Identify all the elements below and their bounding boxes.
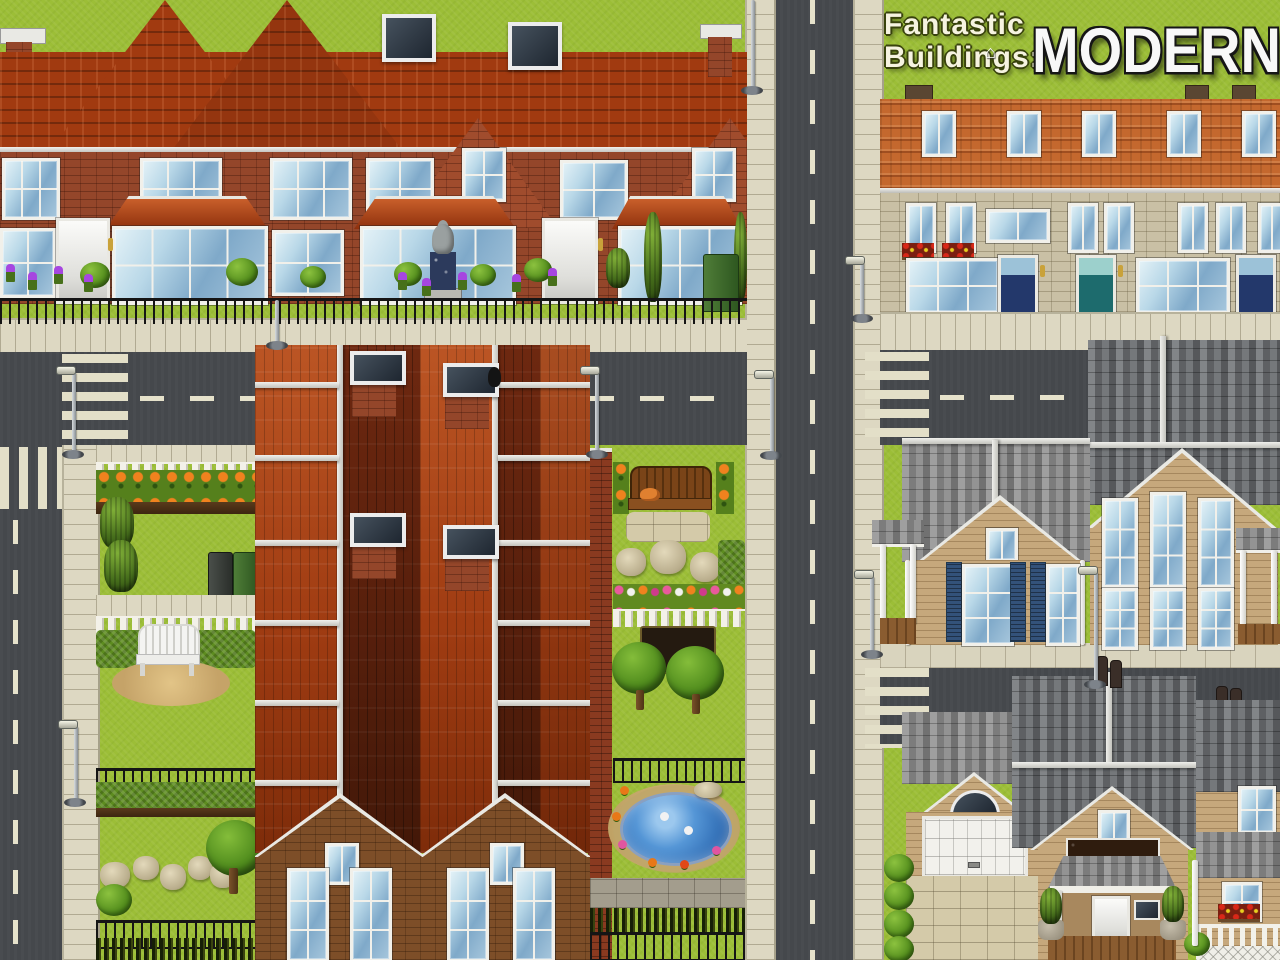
tree-canopy <box>666 646 724 700</box>
flowerbed-soil <box>96 808 256 817</box>
street-lamp-head <box>58 720 78 729</box>
garage-door-handle <box>968 862 980 868</box>
white-bench-leg <box>189 663 194 676</box>
bush <box>300 266 326 288</box>
dark-plants <box>96 938 256 960</box>
black-cat <box>488 367 501 387</box>
tall-window <box>1198 498 1234 588</box>
porch-base <box>1048 936 1176 960</box>
title-main: MODERN <box>1032 14 1280 87</box>
roof-window <box>1007 111 1041 157</box>
street-lamp-head <box>854 570 874 579</box>
roof-ridge-bar <box>498 620 590 626</box>
window-wide <box>986 209 1050 243</box>
stone-terraced-houses <box>880 85 1280 312</box>
road-vertical-left <box>0 445 62 960</box>
roof-ridge-bar <box>255 780 339 786</box>
flower <box>712 846 721 855</box>
window <box>2 158 60 220</box>
roof-window <box>1242 111 1276 157</box>
street-lamp-pole <box>860 262 864 320</box>
street-lamp-base <box>760 451 782 460</box>
plant-pot <box>1160 920 1186 940</box>
porch-deck <box>1238 624 1280 644</box>
window <box>1068 203 1098 253</box>
street-lamp-base <box>62 450 84 459</box>
window-shutter <box>946 562 962 642</box>
street-lamp-head <box>580 366 600 375</box>
purple-flowers <box>28 272 37 290</box>
door-lamp <box>108 238 113 251</box>
bay-window-roof <box>106 196 268 229</box>
window <box>1104 203 1134 253</box>
tree-trunk <box>692 694 700 714</box>
street-lamp-head <box>56 366 76 375</box>
window <box>962 564 1014 646</box>
tree-trunk <box>229 868 238 894</box>
porch-post <box>910 544 916 624</box>
street-lamp-base <box>851 314 873 323</box>
stepping-stone <box>133 856 159 880</box>
purple-flowers <box>548 268 557 286</box>
roof-ridge-bar <box>255 382 339 388</box>
street-lamp-base <box>861 650 883 659</box>
street-lamp-pole <box>275 300 279 346</box>
porch-awning <box>1048 856 1176 888</box>
street-lamp-base <box>64 798 86 807</box>
iron-fence <box>613 758 745 783</box>
street-lamp-head <box>845 256 865 265</box>
roof-ridge-bar <box>255 700 339 706</box>
awning-roof <box>1196 832 1280 881</box>
garage-roof <box>902 712 1028 784</box>
orange-cat <box>640 488 660 501</box>
sand-patch <box>112 660 230 706</box>
bay-window-roof <box>354 196 516 229</box>
tree-canopy <box>612 642 666 694</box>
hedge-row <box>96 782 256 810</box>
statue-plinth <box>430 252 456 290</box>
picket-fence <box>613 609 745 627</box>
tulips-multicolor <box>613 584 745 610</box>
chimney-pipe <box>1110 660 1122 688</box>
flower <box>648 858 657 867</box>
street-lamp-pole <box>870 576 874 656</box>
garden-path <box>96 595 256 617</box>
street-lamp-pole <box>770 376 774 456</box>
flower <box>620 786 629 795</box>
roof-skylight <box>508 22 562 70</box>
tulips-orange <box>716 462 734 514</box>
roof-panel <box>495 345 540 853</box>
tall-window <box>513 868 555 960</box>
window <box>1258 203 1280 253</box>
chimney-skylight <box>443 525 499 559</box>
gable-window <box>986 528 1018 562</box>
bush <box>226 258 258 286</box>
street-lamp-pole <box>751 0 755 90</box>
road-center-line <box>13 520 18 960</box>
chimney <box>708 37 732 77</box>
street-lamp-pole <box>72 372 76 456</box>
water-lily <box>684 826 693 835</box>
stepping-stone <box>160 864 186 890</box>
street-lamp-pole <box>74 726 78 804</box>
tall-window <box>350 868 392 960</box>
bush <box>884 936 914 960</box>
potted-plant <box>1162 886 1184 922</box>
door-lamp <box>598 238 603 251</box>
roof-ridge <box>1160 336 1166 446</box>
rock <box>616 548 646 576</box>
street-lamp-base <box>1084 680 1106 689</box>
flower <box>612 812 621 821</box>
crosswalk <box>865 352 929 443</box>
tulips-orange <box>613 462 629 514</box>
tall-window <box>447 868 489 960</box>
chimney-skylight <box>350 351 406 385</box>
tall-window <box>287 868 329 960</box>
roof-ridge <box>492 345 498 853</box>
rock <box>650 540 686 574</box>
brick-terraced-houses <box>0 0 747 324</box>
driveway <box>906 876 1038 960</box>
roof-ridge-bar <box>498 700 590 706</box>
tall-window <box>1150 588 1186 650</box>
balcony-planter <box>1066 838 1160 858</box>
window <box>1238 786 1276 834</box>
grass-blades <box>590 908 745 934</box>
hedge <box>196 630 256 668</box>
road-center-line <box>810 0 815 960</box>
roof-ridge <box>337 345 343 853</box>
wooden-bench-seat <box>628 498 712 510</box>
window <box>1046 564 1080 646</box>
roof-panel <box>340 345 420 853</box>
pond-rock <box>694 782 722 798</box>
street-lamp-base <box>741 86 763 95</box>
bay-window-roof <box>612 196 742 229</box>
roof-ridge-bar <box>255 540 339 546</box>
flower <box>680 860 689 869</box>
crosswalk <box>0 447 62 509</box>
porch-deck <box>880 618 916 644</box>
front-door-navy <box>1236 255 1276 312</box>
street-lamp-base <box>586 450 608 459</box>
roof-ridge-bar <box>498 455 590 461</box>
roof-ridge <box>992 440 998 504</box>
roof-ridge-bar <box>498 540 590 546</box>
purple-flowers <box>6 264 15 282</box>
purple-flowers <box>54 266 63 284</box>
potted-plant <box>1040 888 1062 924</box>
street-lamp-pole <box>595 372 599 456</box>
tileset-preview-map: Fantastic Buildings: ⌂ MODERN <box>0 0 1280 960</box>
chimney-skylight <box>350 513 406 547</box>
bush <box>884 854 914 882</box>
tall-window <box>1198 588 1234 650</box>
porch-post <box>880 544 886 624</box>
front-door-white <box>56 218 110 304</box>
roof-panel <box>255 345 340 853</box>
window <box>1178 203 1208 253</box>
roof-panel <box>540 345 590 853</box>
purple-flowers <box>458 272 467 290</box>
apartment-block <box>255 345 590 960</box>
house-icon: ⌂ <box>985 42 996 63</box>
stone-patio <box>626 512 710 542</box>
front-door-white <box>542 218 598 304</box>
potted-plant <box>606 248 630 288</box>
white-bench <box>138 624 200 658</box>
roof-ridge-bar <box>498 780 590 786</box>
flower-box <box>1218 904 1260 922</box>
flower <box>618 840 627 849</box>
conifer-bush <box>104 540 138 592</box>
tall-window <box>1102 588 1138 650</box>
iron-railing-fence <box>0 298 747 324</box>
roof-skylight <box>382 14 436 62</box>
window-shutter <box>1010 562 1026 642</box>
roof-window <box>1167 111 1201 157</box>
tree-trunk <box>636 690 644 710</box>
bush <box>470 264 496 286</box>
street-lamp-pole <box>1094 572 1098 686</box>
tall-window <box>1102 498 1138 588</box>
porch-post <box>1192 860 1198 946</box>
roof-ridge <box>1088 442 1280 448</box>
roof-ridge-bar <box>498 382 590 388</box>
shop-window <box>1136 258 1230 312</box>
stone-path <box>590 878 745 908</box>
dormer-window <box>462 148 506 202</box>
purple-flowers <box>422 278 431 296</box>
rock <box>690 552 720 582</box>
bush <box>884 882 914 910</box>
roof-window <box>1082 111 1116 157</box>
white-bench-leg <box>140 663 145 676</box>
street-lamp-head <box>1078 566 1098 575</box>
street-lamp-head <box>754 370 774 379</box>
porch-post <box>1271 550 1277 632</box>
wall-lamp <box>1118 265 1123 277</box>
bush <box>884 910 914 938</box>
dormer-window <box>692 148 736 202</box>
roof-window <box>922 111 956 157</box>
window <box>1216 203 1246 253</box>
window <box>270 158 352 220</box>
roof-ridge-bar <box>255 620 339 626</box>
porch-roof <box>872 520 924 547</box>
trash-bin-black <box>208 552 233 600</box>
gray-roof <box>1196 700 1280 795</box>
window <box>560 160 628 220</box>
roof-ridge-bar <box>255 455 339 461</box>
purple-flowers <box>512 274 521 292</box>
wall-lamp <box>1040 265 1045 277</box>
street-lamp-base <box>266 341 288 350</box>
iron-fence <box>590 932 745 960</box>
purple-flowers <box>84 274 93 292</box>
porch-post <box>1240 550 1246 632</box>
front-door-navy <box>998 255 1038 312</box>
garden-path <box>96 445 256 463</box>
shop-window <box>906 258 1000 312</box>
porch-window <box>1134 900 1160 920</box>
sidewalk <box>745 0 776 960</box>
statue-figure <box>432 224 454 254</box>
bush <box>96 884 132 916</box>
tall-window <box>1150 492 1186 588</box>
sidewalk <box>62 445 100 960</box>
window-shutter <box>1030 562 1046 642</box>
roof-ridge <box>1012 762 1196 768</box>
purple-flowers <box>398 272 407 290</box>
cypress-bush <box>644 212 662 302</box>
front-door-teal <box>1076 255 1116 312</box>
water-lily <box>660 812 669 821</box>
